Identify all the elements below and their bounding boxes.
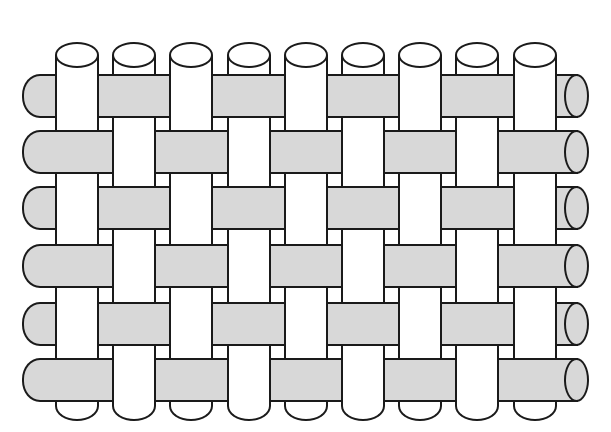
warp-top-end-icon-3 <box>169 42 213 68</box>
warp-5-over-weft-1 <box>284 72 328 120</box>
warp-6-over-weft-6 <box>341 356 385 404</box>
warp-3-over-weft-3 <box>169 184 213 232</box>
warp-7-over-weft-5 <box>398 300 442 348</box>
warp-top-end-icon-4 <box>227 42 271 68</box>
warp-3-over-weft-1 <box>169 72 213 120</box>
warp-9-over-weft-3 <box>513 184 557 232</box>
warp-1-over-weft-5 <box>55 300 99 348</box>
warp-top-end-icon-6 <box>341 42 385 68</box>
warp-8-over-weft-2 <box>455 128 499 176</box>
warp-7-over-weft-1 <box>398 72 442 120</box>
warp-7-over-weft-3 <box>398 184 442 232</box>
warp-4-over-weft-4 <box>227 242 271 290</box>
warp-2-over-weft-6 <box>112 356 156 404</box>
warp-top-end-icon-9 <box>513 42 557 68</box>
weft-right-end-icon-3 <box>564 186 589 230</box>
warp-3-over-weft-5 <box>169 300 213 348</box>
weft-right-end-icon-5 <box>564 302 589 346</box>
warp-8-over-weft-6 <box>455 356 499 404</box>
warp-5-over-weft-3 <box>284 184 328 232</box>
warp-top-end-icon-7 <box>398 42 442 68</box>
warp-2-over-weft-4 <box>112 242 156 290</box>
warp-top-end-icon-5 <box>284 42 328 68</box>
warp-5-over-weft-5 <box>284 300 328 348</box>
warp-9-over-weft-5 <box>513 300 557 348</box>
warp-2-over-weft-2 <box>112 128 156 176</box>
weft-right-end-icon-2 <box>564 130 589 174</box>
warp-8-over-weft-4 <box>455 242 499 290</box>
warp-top-end-icon-1 <box>55 42 99 68</box>
warp-top-end-icon-2 <box>112 42 156 68</box>
warp-6-over-weft-4 <box>341 242 385 290</box>
plain-weave-diagram <box>0 0 611 432</box>
weft-right-end-icon-4 <box>564 244 589 288</box>
warp-1-over-weft-1 <box>55 72 99 120</box>
weft-right-end-icon-1 <box>564 74 589 118</box>
warp-4-over-weft-2 <box>227 128 271 176</box>
warp-4-over-weft-6 <box>227 356 271 404</box>
weft-right-end-icon-6 <box>564 358 589 402</box>
warp-9-over-weft-1 <box>513 72 557 120</box>
warp-1-over-weft-3 <box>55 184 99 232</box>
warp-6-over-weft-2 <box>341 128 385 176</box>
warp-top-end-icon-8 <box>455 42 499 68</box>
